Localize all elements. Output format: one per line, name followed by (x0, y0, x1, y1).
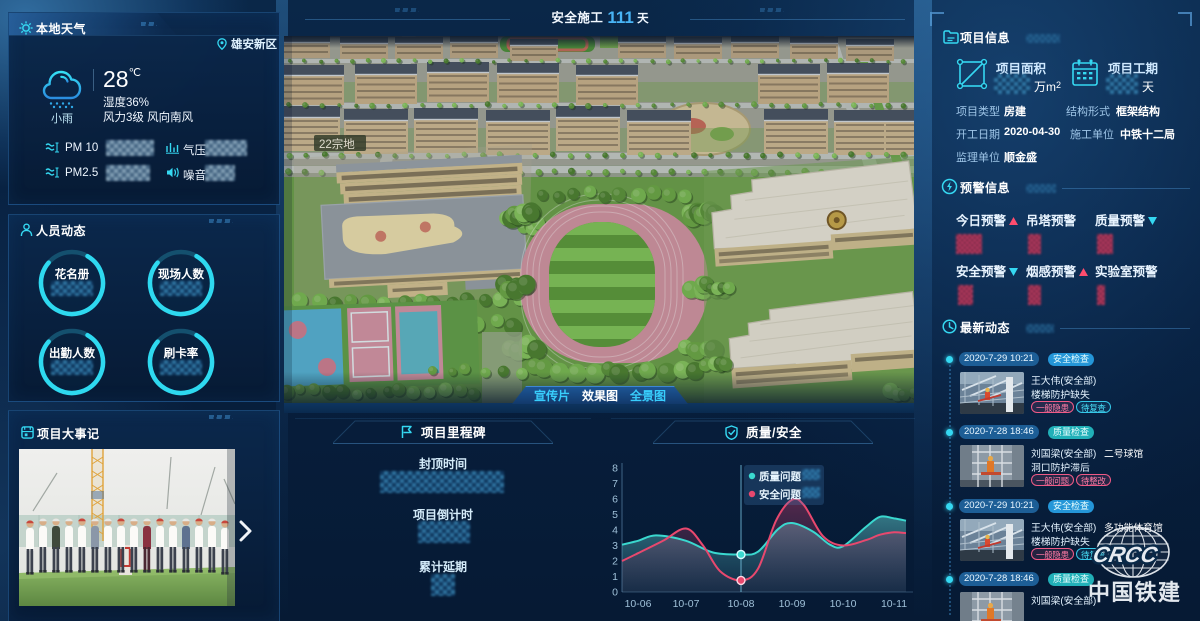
svg-text:4: 4 (612, 525, 618, 537)
svg-text:3: 3 (612, 540, 618, 552)
svg-text:10-11: 10-11 (881, 598, 907, 610)
svg-text:6: 6 (612, 494, 618, 506)
svg-text:0: 0 (612, 587, 618, 599)
svg-text:10-06: 10-06 (625, 598, 652, 610)
svg-text:安全问题: 安全问题 (759, 488, 801, 501)
svg-text:10-08: 10-08 (728, 598, 755, 610)
svg-text:10-09: 10-09 (779, 598, 806, 610)
svg-text:质量问题: 质量问题 (759, 470, 801, 483)
svg-text:1: 1 (612, 571, 618, 583)
svg-text:8: 8 (612, 463, 618, 475)
svg-text:7: 7 (612, 478, 618, 490)
svg-text:10-07: 10-07 (673, 598, 700, 610)
svg-text:中国铁建: 中国铁建 (1088, 580, 1180, 605)
svg-text:10-10: 10-10 (830, 598, 857, 610)
svg-text:CRCC: CRCC (1091, 542, 1161, 567)
svg-text:5: 5 (612, 509, 618, 521)
svg-text:2: 2 (612, 556, 618, 568)
